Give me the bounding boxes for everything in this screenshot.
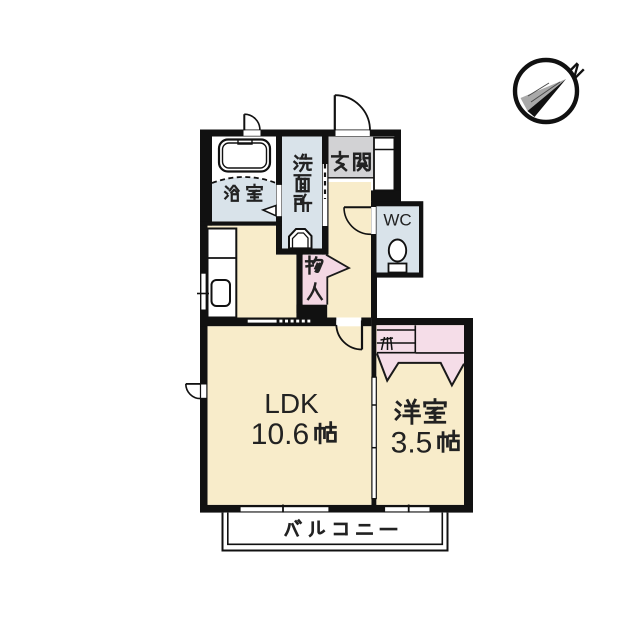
- svg-text:10.6: 10.6: [251, 418, 309, 451]
- svg-text:3.5: 3.5: [391, 427, 433, 460]
- svg-text:LDK: LDK: [264, 388, 319, 419]
- svg-text:WC: WC: [383, 211, 411, 230]
